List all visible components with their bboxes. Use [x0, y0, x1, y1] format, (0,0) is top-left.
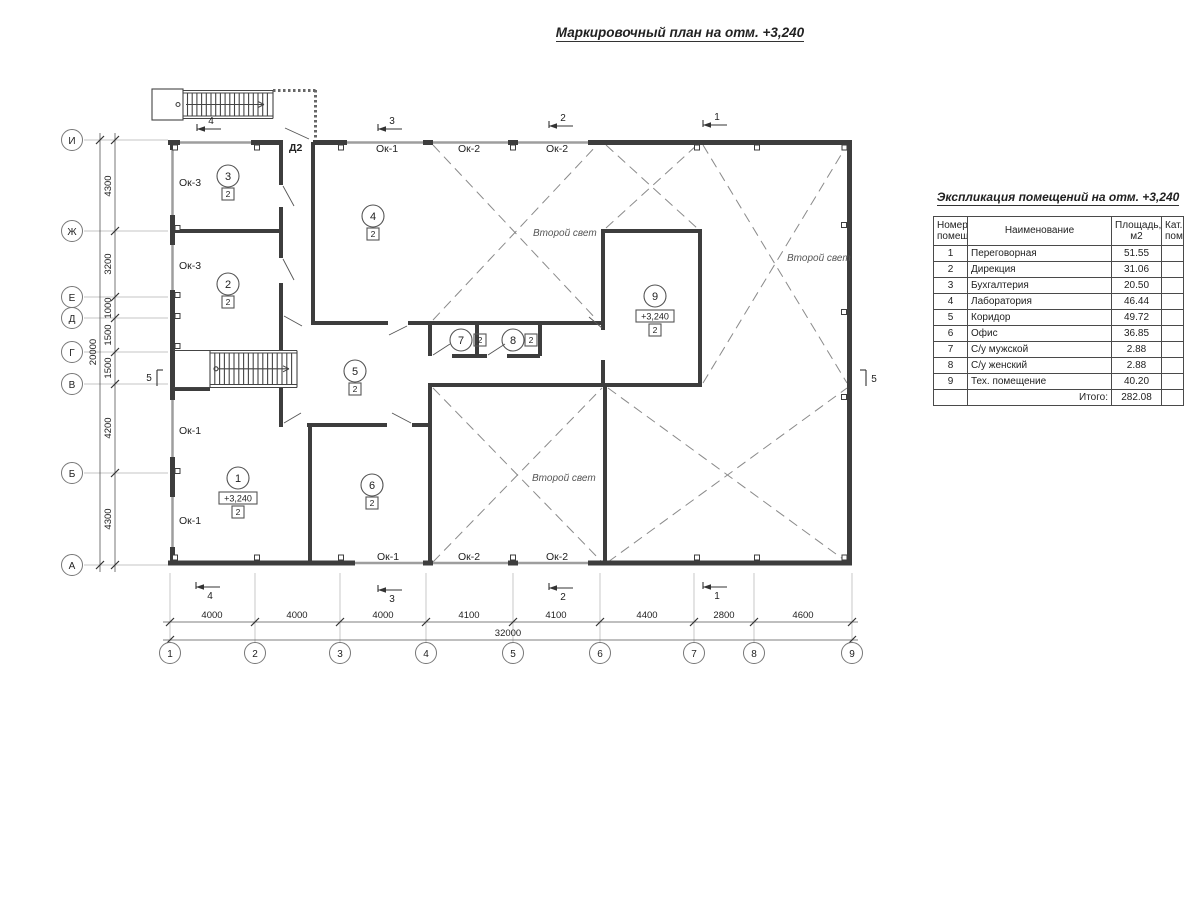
- section-label-4-top: 4: [208, 116, 214, 127]
- dim-bottom-6: 2800: [713, 610, 734, 621]
- section-label-5-left: 5: [146, 373, 152, 384]
- second-light-label-3: Второй свет: [532, 473, 596, 484]
- section-label-3-bottom: 3: [389, 594, 395, 605]
- room-5-floor-badge: 2: [353, 384, 358, 394]
- header-room-name: Наименование: [968, 217, 1112, 246]
- room-1-floor-badge: 2: [236, 507, 241, 517]
- row-axis-label-7: А: [69, 561, 76, 572]
- col-axis-label-1: 2: [252, 649, 258, 660]
- row-axis-label-4: Г: [69, 348, 75, 359]
- col-axis-label-5: 6: [597, 649, 603, 660]
- total-label-cell: Итого:: [968, 390, 1112, 406]
- dim-bottom-2: 4000: [372, 610, 393, 621]
- window-label-ok2-bottom1: Ок-2: [458, 551, 480, 563]
- second-light-label-1: Второй свет: [533, 228, 597, 239]
- dim-left-3: 1500: [103, 324, 114, 345]
- room-7-floor-badge: 2: [478, 335, 483, 345]
- header-room-area: Площадь, м2: [1112, 217, 1162, 246]
- room-number-8: 8: [510, 335, 516, 347]
- room-name-cell: Переговорная: [968, 246, 1112, 262]
- window-label-ok3-left2: Ок-3: [179, 260, 201, 272]
- dim-bottom-0: 4000: [201, 610, 222, 621]
- interior-stair: [173, 351, 297, 388]
- dim-bottom-7: 4600: [792, 610, 813, 621]
- row-axis-label-0: И: [68, 136, 75, 147]
- col-axis-label-8: 9: [849, 649, 855, 660]
- col-axis-label-3: 4: [423, 649, 429, 660]
- dimension-labels-bottom: 4000 4000 4000 4100 4100 4400 2800 4600 …: [201, 610, 813, 639]
- total-cat-cell: [1162, 390, 1184, 406]
- room-number-2: 2: [225, 279, 231, 291]
- room-cat-cell: [1162, 310, 1184, 326]
- table-row: 4 Лаборатория 46.44: [934, 294, 1184, 310]
- room-area-cell: 2.88: [1112, 358, 1162, 374]
- drawing-sheet: Маркировочный план на отм. +3,240: [0, 0, 1200, 900]
- room-area-cell: 2.88: [1112, 342, 1162, 358]
- room-name-cell: С/у мужской: [968, 342, 1112, 358]
- section-label-4-bottom: 4: [207, 591, 213, 602]
- row-axis-label-2: Е: [69, 293, 76, 304]
- dim-bottom-5: 4400: [636, 610, 657, 621]
- room-8-floor-badge: 2: [529, 335, 534, 345]
- room-area-cell: 46.44: [1112, 294, 1162, 310]
- room-number-6: 6: [369, 480, 375, 492]
- table-row: 5 Коридор 49.72: [934, 310, 1184, 326]
- section-marker-labels: 4 3 2 1 4 3 2 1 5 5: [146, 112, 877, 605]
- col-axis-label-6: 7: [691, 649, 697, 660]
- door-swings: [283, 128, 602, 423]
- room-cat-cell: [1162, 358, 1184, 374]
- dim-left-0: 4300: [103, 175, 114, 196]
- room-area-cell: 36.85: [1112, 326, 1162, 342]
- header-room-number: Номер помещ.: [934, 217, 968, 246]
- section-label-2-bottom: 2: [560, 592, 566, 603]
- room-cat-cell: [1162, 342, 1184, 358]
- room-cat-cell: [1162, 278, 1184, 294]
- room-number-9: 9: [652, 291, 658, 303]
- room-number-cell: 1: [934, 246, 968, 262]
- window-label-ok1-bottom: Ок-1: [377, 551, 399, 563]
- room-name-cell: Тех. помещение: [968, 374, 1112, 390]
- room-4-floor-badge: 2: [371, 229, 376, 239]
- room-3-floor-badge: 2: [226, 189, 231, 199]
- row-axis-label-5: В: [69, 380, 76, 391]
- room-name-cell: Офис: [968, 326, 1112, 342]
- room-number-cell: 9: [934, 374, 968, 390]
- table-row: 6 Офис 36.85: [934, 326, 1184, 342]
- section-label-1-bottom: 1: [714, 591, 720, 602]
- room-number-cell: 2: [934, 262, 968, 278]
- header-room-cat: Кат. пом.: [1162, 217, 1184, 246]
- room-name-cell: Лаборатория: [968, 294, 1112, 310]
- col-axis-bubbles: 1 2 3 4 5 6 7 8 9: [160, 643, 863, 664]
- room-number-5: 5: [352, 366, 358, 378]
- room-cat-cell: [1162, 262, 1184, 278]
- table-header-row: Номер помещ. Наименование Площадь, м2 Ка…: [934, 217, 1184, 246]
- room-number-cell: 4: [934, 294, 968, 310]
- room-area-cell: 31.06: [1112, 262, 1162, 278]
- row-axis-label-1: Ж: [67, 227, 77, 238]
- window-label-ok2-bottom2: Ок-2: [546, 551, 568, 563]
- table-row: 3 Бухгалтерия 20.50: [934, 278, 1184, 294]
- window-label-ok1-left2: Ок-1: [179, 515, 201, 527]
- dimension-labels-left: 4300 3200 1000 1500 1500 4200 4300 20000: [88, 175, 114, 529]
- dim-left-2: 1000: [103, 297, 114, 318]
- room-area-cell: 20.50: [1112, 278, 1162, 294]
- room-name-cell: Бухгалтерия: [968, 278, 1112, 294]
- room-cat-cell: [1162, 246, 1184, 262]
- section-label-2-top: 2: [560, 113, 566, 124]
- room-name-cell: С/у женский: [968, 358, 1112, 374]
- room-number-1: 1: [235, 473, 241, 485]
- table-row: 8 С/у женский 2.88: [934, 358, 1184, 374]
- room-area-cell: 51.55: [1112, 246, 1162, 262]
- room-schedule-title: Экспликация помещений на отм. +3,240: [928, 188, 1188, 206]
- table-total-row: Итого: 282.08: [934, 390, 1184, 406]
- second-light-label-2: Второй свет: [787, 253, 851, 264]
- room-area-cell: 49.72: [1112, 310, 1162, 326]
- row-axis-label-6: Б: [69, 469, 76, 480]
- table-row: 7 С/у мужской 2.88: [934, 342, 1184, 358]
- room-2-floor-badge: 2: [226, 297, 231, 307]
- room-name-cell: Коридор: [968, 310, 1112, 326]
- room-number-3: 3: [225, 171, 231, 183]
- second-light-labels: Второй свет Второй свет Второй свет: [532, 228, 851, 484]
- table-row: 2 Дирекция 31.06: [934, 262, 1184, 278]
- dim-left-4: 1500: [103, 357, 114, 378]
- room-name-cell: Дирекция: [968, 262, 1112, 278]
- door-label-d2: Д2: [289, 142, 302, 154]
- room-schedule-title-text: Экспликация помещений на отм. +3,240: [937, 190, 1180, 206]
- room-schedule-table: Номер помещ. Наименование Площадь, м2 Ка…: [933, 216, 1184, 406]
- dim-bottom-3: 4100: [458, 610, 479, 621]
- room-number-cell: 6: [934, 326, 968, 342]
- room-6-floor-badge: 2: [370, 498, 375, 508]
- room-number-cell: 5: [934, 310, 968, 326]
- void-cross-marks: [433, 145, 847, 562]
- room-9-elevation: +3,240: [641, 312, 669, 322]
- dim-left-5: 4200: [103, 417, 114, 438]
- room-number-cell: 8: [934, 358, 968, 374]
- col-axis-label-2: 3: [337, 649, 343, 660]
- dim-bottom-4: 4100: [545, 610, 566, 621]
- dim-left-1: 3200: [103, 253, 114, 274]
- row-axis-label-3: Д: [69, 314, 76, 325]
- section-label-3-top: 3: [389, 116, 395, 127]
- room-cat-cell: [1162, 294, 1184, 310]
- room-9-floor-badge: 2: [653, 325, 658, 335]
- table-row: 9 Тех. помещение 40.20: [934, 374, 1184, 390]
- dim-bottom-1: 4000: [286, 610, 307, 621]
- window-label-ok1-top: Ок-1: [376, 143, 398, 155]
- room-number-4: 4: [370, 211, 376, 223]
- dim-bottom-total: 32000: [495, 628, 521, 639]
- room-cat-cell: [1162, 374, 1184, 390]
- section-label-5-right: 5: [871, 374, 877, 385]
- dim-left-total: 20000: [88, 339, 99, 365]
- room-number-cell: 3: [934, 278, 968, 294]
- col-axis-label-0: 1: [167, 649, 173, 660]
- section-label-1-top: 1: [714, 112, 720, 123]
- row-axis-bubbles: И Ж Е Д Г В Б А: [62, 130, 83, 576]
- room-cat-cell: [1162, 326, 1184, 342]
- window-label-ok2-top1: Ок-2: [458, 143, 480, 155]
- room-1-elevation: +3,240: [224, 494, 252, 504]
- room-mark-labels: 1 +3,240 2 2 2 3 2 4 2 5 2 6 2 7 2 8 2 9…: [224, 171, 669, 517]
- col-axis-label-7: 8: [751, 649, 757, 660]
- room-number-7: 7: [458, 335, 464, 347]
- total-value-cell: 282.08: [1112, 390, 1162, 406]
- dim-left-6: 4300: [103, 508, 114, 529]
- col-axis-label-4: 5: [510, 649, 516, 660]
- room-number-cell: 7: [934, 342, 968, 358]
- window-label-ok1-left1: Ок-1: [179, 425, 201, 437]
- floor-plan: 4300 3200 1000 1500 1500 4200 4300 20000…: [0, 0, 1200, 900]
- window-label-ok3-left1: Ок-3: [179, 177, 201, 189]
- total-empty-cell: [934, 390, 968, 406]
- room-area-cell: 40.20: [1112, 374, 1162, 390]
- table-row: 1 Переговорная 51.55: [934, 246, 1184, 262]
- window-label-ok2-top2: Ок-2: [546, 143, 568, 155]
